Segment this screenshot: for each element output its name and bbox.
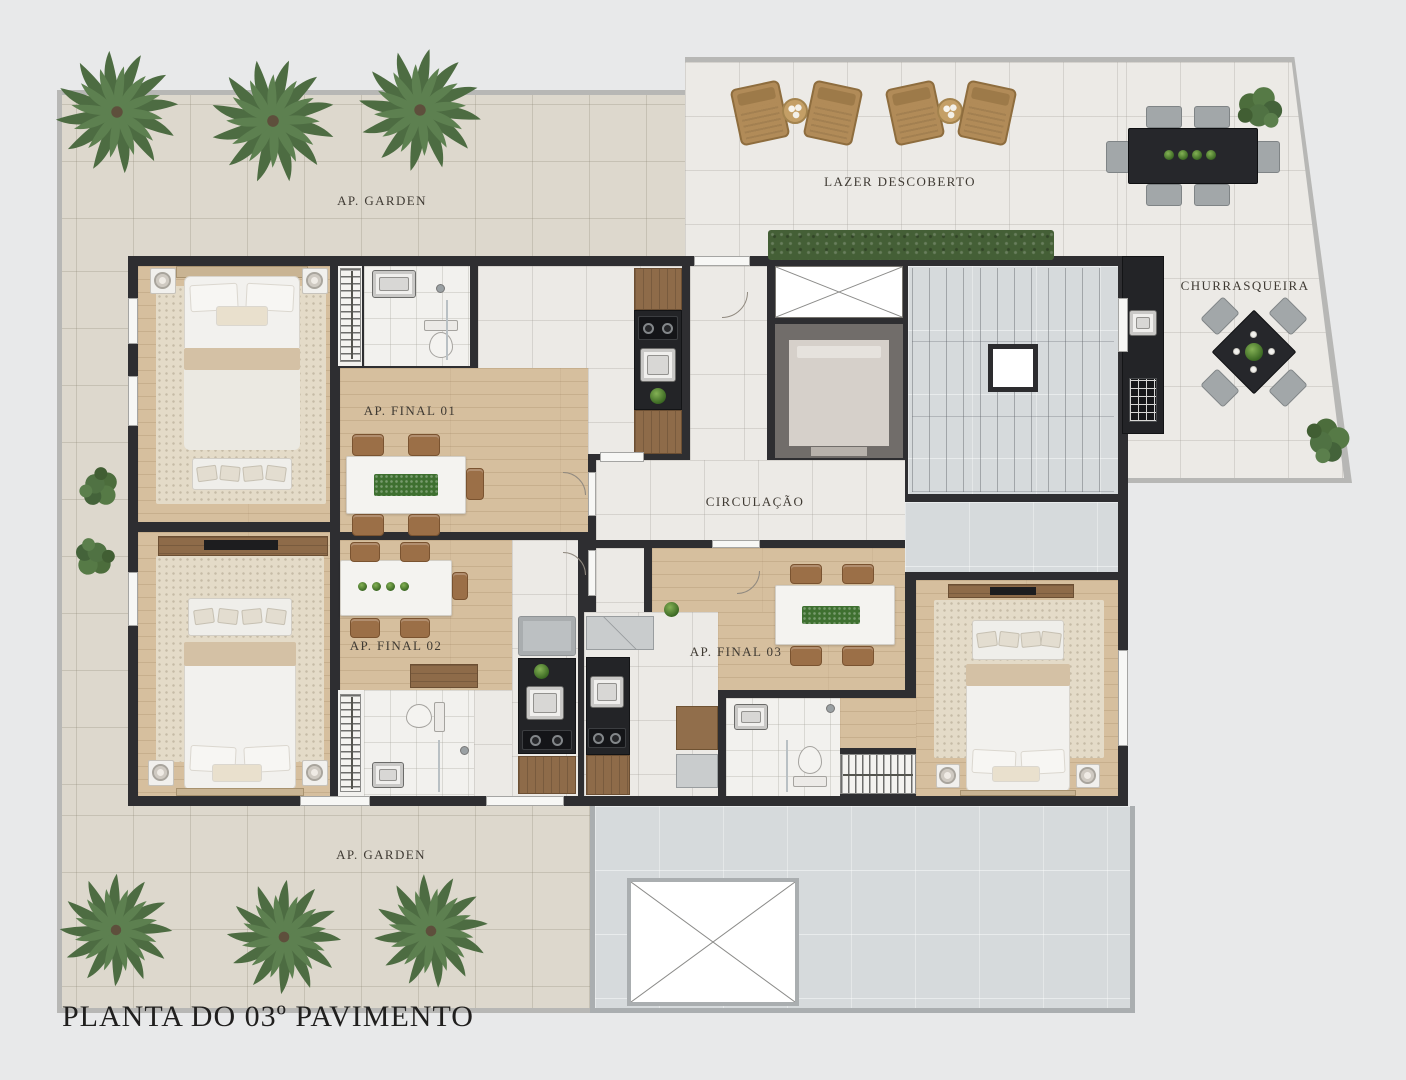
table-plant [372, 582, 381, 591]
accent-pillow [216, 306, 268, 326]
bed-bench [192, 458, 292, 490]
burner [530, 735, 541, 746]
counter-return [586, 616, 654, 650]
kitchen02-corridor-floor [474, 690, 512, 796]
wardrobe [340, 268, 361, 362]
fridge [518, 616, 576, 656]
table-plant [1178, 150, 1188, 160]
window [128, 376, 138, 426]
wardrobe [340, 694, 361, 792]
circulacao-ext-floor [596, 548, 644, 612]
toilet-bowl [406, 704, 432, 728]
toilet-bowl [429, 332, 453, 358]
door-gap-stairs [1118, 298, 1128, 352]
table-runner [802, 606, 860, 624]
chair [790, 646, 822, 666]
table-runner [374, 474, 438, 496]
door-gap-ap03 [712, 540, 760, 548]
bed-bench [188, 598, 292, 636]
circulacao-right-floor [905, 502, 1118, 572]
table-plant [1245, 343, 1263, 361]
chair [350, 618, 380, 638]
window [1118, 650, 1128, 746]
plant-pot [664, 602, 679, 617]
bbq-sink [1129, 310, 1157, 336]
table-plant [1192, 150, 1202, 160]
plate [1250, 331, 1257, 338]
shower-glass [786, 740, 788, 792]
bush [1228, 76, 1292, 140]
plant-pot [534, 664, 549, 679]
bush [1296, 408, 1360, 472]
chair [1194, 106, 1230, 128]
window [300, 796, 370, 806]
palm-tree [219, 872, 349, 1002]
chair [350, 542, 380, 562]
table-plant [1164, 150, 1174, 160]
bathroom-sink [372, 762, 404, 788]
table-plant [400, 582, 409, 591]
chair [466, 468, 484, 500]
bench-pillow [219, 465, 240, 482]
toilet-tank [424, 320, 458, 331]
bbq-table-set [1192, 290, 1316, 414]
bench-pillow [976, 631, 998, 649]
bench-pillow [265, 608, 287, 626]
bench-pillow [196, 465, 218, 483]
label-lazer: LAZER DESCOBERTO [824, 174, 976, 190]
floor-plan: AP. GARDEN LAZER DESCOBERTO CHURRASQUEIR… [0, 0, 1406, 1080]
burner [662, 323, 673, 334]
door-gap-hall [600, 452, 644, 462]
window [128, 572, 138, 626]
palm-tree [202, 50, 344, 192]
table-plant [1206, 150, 1216, 160]
bed [184, 268, 300, 450]
chair [408, 514, 440, 536]
plan-title: PLANTA DO 03º PAVIMENTO [62, 1000, 474, 1034]
chair [452, 572, 468, 600]
blanket-fold [184, 348, 300, 370]
label-ap02: AP. FINAL 02 [350, 638, 443, 654]
wardrobe [840, 754, 916, 794]
toilet-bowl [798, 746, 822, 774]
table-plant [358, 582, 367, 591]
palm-tree [52, 866, 180, 994]
chair [1146, 184, 1182, 206]
tv-screen [990, 587, 1036, 595]
palm-tree [47, 42, 187, 182]
kitchen-sink [526, 686, 564, 720]
burner [552, 735, 563, 746]
door-gap-entrance [694, 256, 750, 266]
bench-pillow [241, 608, 262, 625]
bush [72, 460, 128, 516]
chair [400, 618, 430, 638]
bench-pillow [1020, 631, 1041, 648]
label-garden-bottom: AP. GARDEN [336, 847, 426, 863]
plate [1233, 348, 1240, 355]
hedge [768, 230, 1054, 260]
dining-table [340, 560, 452, 616]
palm-tree [366, 866, 496, 996]
elevator-panel [797, 346, 881, 358]
elevator-door [811, 447, 867, 456]
elevator [775, 324, 903, 458]
stair-void [988, 344, 1038, 392]
bench-pillow [998, 631, 1020, 648]
shower-head [436, 284, 445, 293]
window [486, 796, 564, 806]
cooktop [522, 730, 572, 750]
lamp [1079, 767, 1096, 784]
slab-void [627, 878, 799, 1006]
lamp [152, 764, 169, 781]
toilet-tank [434, 702, 445, 732]
chair [400, 542, 430, 562]
kitchen-cabinet [518, 756, 576, 794]
blanket-fold [184, 642, 296, 666]
accent-pillow [992, 766, 1040, 782]
side-table [782, 98, 808, 124]
duct-shaft [775, 266, 903, 318]
window [128, 298, 138, 344]
plate [1250, 366, 1257, 373]
lamp [154, 272, 171, 289]
palm-tree [350, 40, 490, 180]
lamp [939, 767, 956, 784]
door-gap-ap01 [588, 472, 596, 516]
shower-glass [446, 300, 448, 360]
service-cart [676, 754, 718, 788]
bush [66, 530, 122, 586]
chair [408, 434, 440, 456]
cooktop [588, 728, 626, 748]
chair [352, 434, 384, 456]
burner [593, 733, 604, 744]
lamp [306, 764, 323, 781]
toilet-tank [793, 776, 827, 787]
tv-screen [204, 540, 278, 550]
accent-pillow [212, 764, 262, 782]
burner [610, 733, 621, 744]
chair [842, 646, 874, 666]
label-garden-top: AP. GARDEN [337, 193, 427, 209]
bed-bench [972, 620, 1064, 660]
shower-head [826, 704, 835, 713]
bbq-grill [1129, 378, 1157, 422]
chair [352, 514, 384, 536]
shower-glass [438, 740, 440, 792]
label-ap03: AP. FINAL 03 [690, 644, 783, 660]
headboard [176, 788, 304, 796]
chair [1194, 184, 1230, 206]
kitchen-sink [590, 676, 624, 708]
bench-pillow [1040, 631, 1062, 649]
plant-pot [650, 388, 666, 404]
chair [1106, 141, 1130, 173]
bench-pillow [242, 465, 263, 482]
headboard [960, 790, 1076, 796]
sideboard [410, 664, 478, 688]
label-ap01: AP. FINAL 01 [364, 403, 457, 419]
bench-pillow [217, 608, 239, 625]
chair [842, 564, 874, 584]
burner [643, 323, 654, 334]
bathroom-sink [372, 270, 416, 298]
corridor03-floor [840, 698, 916, 748]
bathroom-sink [734, 704, 768, 730]
table-plant [386, 582, 395, 591]
kitchen-cabinet [634, 410, 682, 454]
blanket-fold [966, 664, 1070, 686]
chair [790, 564, 822, 584]
label-churrasqueira: CHURRASQUEIRA [1181, 278, 1310, 294]
chair [1256, 141, 1280, 173]
label-circulacao: CIRCULAÇÃO [706, 494, 805, 510]
kitchen-sink [640, 348, 676, 382]
plate [1268, 348, 1275, 355]
bench-pillow [193, 608, 215, 626]
chair [1146, 106, 1182, 128]
bench-pillow [265, 465, 287, 483]
kitchen-cabinet [634, 268, 682, 310]
shower-head [460, 746, 469, 755]
bed [184, 642, 296, 790]
kitchen-cabinet [586, 755, 630, 795]
door-gap-ap02 [588, 550, 596, 596]
bed [966, 664, 1070, 792]
lamp [306, 272, 323, 289]
cooktop [638, 316, 678, 340]
kitchen-table [676, 706, 718, 750]
